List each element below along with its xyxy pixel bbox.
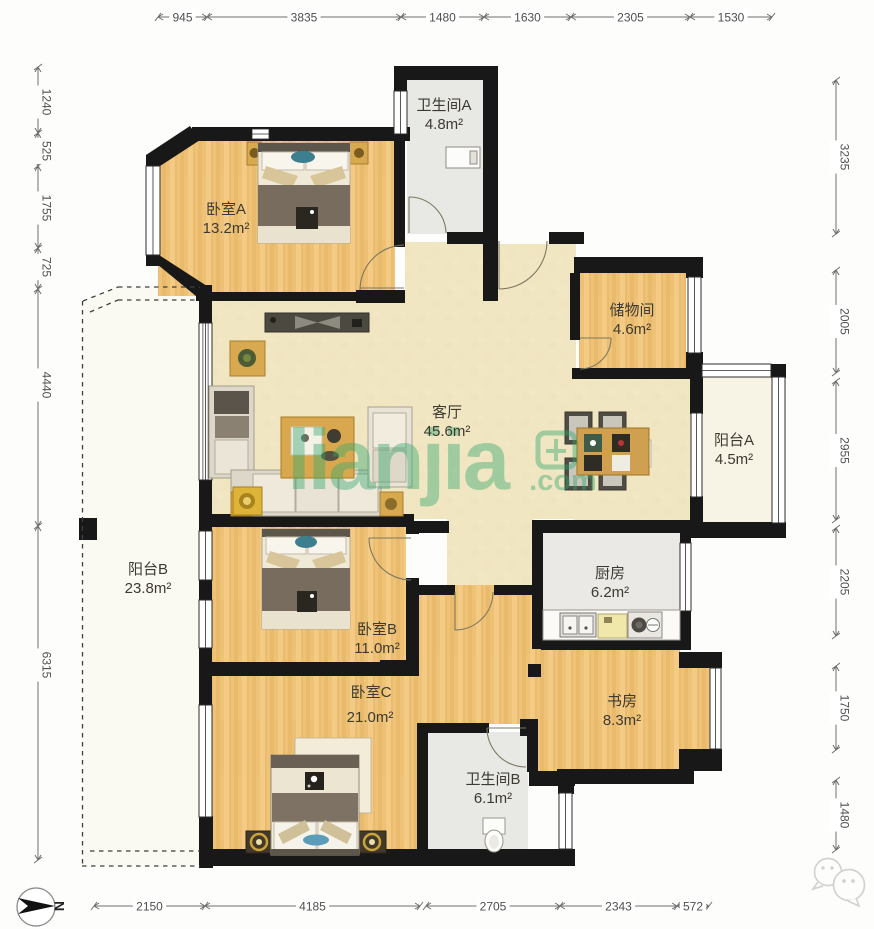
svg-text:6.2m²: 6.2m² (591, 584, 629, 601)
svg-text:卧室B: 卧室B (357, 621, 397, 638)
svg-text:4440: 4440 (40, 372, 54, 399)
svg-text:阳台A: 阳台A (714, 432, 754, 449)
svg-text:1630: 1630 (514, 11, 541, 25)
svg-text:21.0m²: 21.0m² (347, 709, 394, 726)
svg-text:1480: 1480 (838, 802, 852, 829)
svg-text:书房: 书房 (607, 693, 637, 710)
svg-text:.com: .com (529, 465, 597, 497)
svg-text:4.6m²: 4.6m² (613, 321, 651, 338)
svg-text:2705: 2705 (480, 900, 507, 914)
svg-text:4185: 4185 (299, 900, 326, 914)
svg-text:6.1m²: 6.1m² (474, 790, 512, 807)
svg-text:725: 725 (40, 257, 54, 277)
svg-text:4.8m²: 4.8m² (425, 116, 463, 133)
svg-text:572: 572 (683, 900, 703, 914)
svg-text:客厅: 客厅 (432, 404, 462, 421)
svg-text:45.6m²: 45.6m² (424, 423, 471, 440)
svg-text:945: 945 (172, 11, 192, 25)
svg-text:8.3m²: 8.3m² (603, 712, 641, 729)
svg-text:卫生间A: 卫生间A (416, 97, 471, 114)
svg-text:1240: 1240 (40, 89, 54, 116)
svg-text:2305: 2305 (617, 11, 644, 25)
svg-text:2955: 2955 (838, 437, 852, 464)
svg-text:lianjia: lianjia (287, 413, 511, 508)
svg-text:3235: 3235 (838, 144, 852, 171)
svg-text:厨房: 厨房 (595, 565, 625, 582)
svg-text:N: N (51, 901, 67, 911)
svg-text:11.0m²: 11.0m² (354, 640, 400, 657)
svg-text:2343: 2343 (605, 900, 632, 914)
svg-text:2150: 2150 (136, 900, 163, 914)
svg-text:储物间: 储物间 (609, 302, 654, 319)
svg-text:13.2m²: 13.2m² (203, 220, 250, 237)
svg-text:1755: 1755 (40, 195, 54, 222)
svg-text:3835: 3835 (291, 11, 318, 25)
svg-text:23.8m²: 23.8m² (125, 580, 172, 597)
svg-text:2205: 2205 (838, 569, 852, 596)
svg-text:1480: 1480 (429, 11, 456, 25)
svg-text:卧室C: 卧室C (351, 684, 392, 701)
svg-text:阳台B: 阳台B (128, 561, 168, 578)
svg-text:525: 525 (40, 141, 54, 161)
svg-text:卫生间B: 卫生间B (465, 771, 520, 788)
svg-text:1750: 1750 (838, 695, 852, 722)
svg-text:4.5m²: 4.5m² (715, 451, 753, 468)
svg-text:6315: 6315 (40, 652, 54, 679)
svg-text:1530: 1530 (718, 11, 745, 25)
svg-text:2005: 2005 (838, 308, 852, 335)
svg-text:卧室A: 卧室A (206, 201, 246, 218)
